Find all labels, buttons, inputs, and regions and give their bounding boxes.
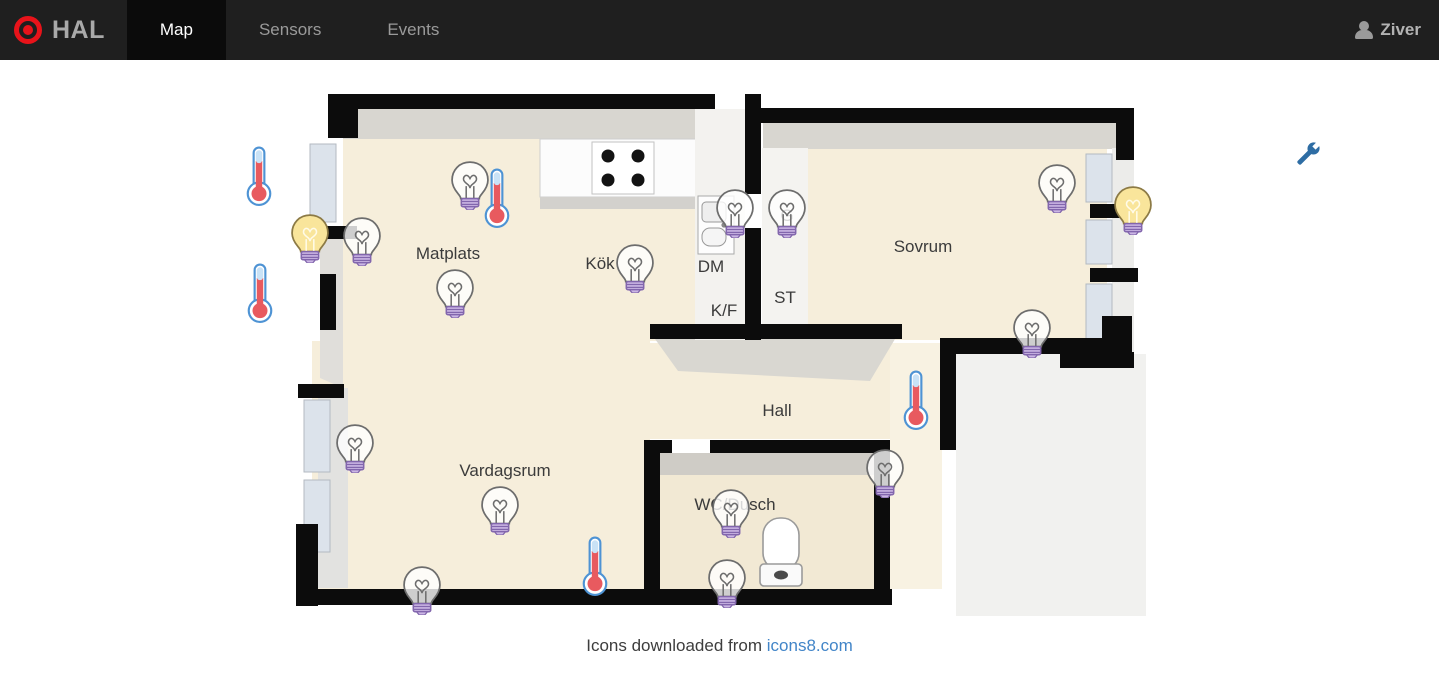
thermometer-icon[interactable] xyxy=(581,536,609,596)
user-menu[interactable]: Ziver xyxy=(1355,0,1439,60)
thermometer-icon[interactable] xyxy=(246,263,274,323)
brand-title: HAL xyxy=(52,16,105,45)
lightbulb-off-icon[interactable] xyxy=(765,188,809,238)
thermometer-icon[interactable] xyxy=(483,168,511,228)
lightbulb-on-icon[interactable] xyxy=(1111,185,1155,235)
floor-plan-drawing xyxy=(240,88,1160,628)
lightbulb-off-icon[interactable] xyxy=(713,188,757,238)
lightbulb-off-icon[interactable] xyxy=(400,565,444,615)
lightbulb-off-icon[interactable] xyxy=(340,216,384,266)
thermometer-icon[interactable] xyxy=(902,370,930,430)
lightbulb-off-icon[interactable] xyxy=(478,485,522,535)
tab-events[interactable]: Events xyxy=(354,0,472,60)
lightbulb-off-icon[interactable] xyxy=(709,488,753,538)
credits-text: Icons downloaded from xyxy=(586,636,762,655)
room-label-matplats: Matplats xyxy=(416,244,480,264)
lightbulb-off-icon[interactable] xyxy=(705,558,749,608)
target-icon xyxy=(14,16,42,44)
credits-caption: Icons downloaded from icons8.com xyxy=(0,636,1439,656)
brand[interactable]: HAL xyxy=(0,0,127,60)
tab-map[interactable]: Map xyxy=(127,0,226,60)
room-label-vardagsrum: Vardagsrum xyxy=(459,461,550,481)
room-label-k-k: Kök xyxy=(585,254,614,274)
user-icon xyxy=(1355,21,1373,39)
main-area: MatplatsKökDMK/FGSTSovrumHallVardagsrumW… xyxy=(0,60,1439,675)
lightbulb-off-icon[interactable] xyxy=(1010,308,1054,358)
lightbulb-off-icon[interactable] xyxy=(1035,163,1079,213)
thermometer-icon[interactable] xyxy=(245,146,273,206)
room-label-sovrum: Sovrum xyxy=(894,237,953,257)
lightbulb-off-icon[interactable] xyxy=(433,268,477,318)
navbar: HAL Map Sensors Events Ziver xyxy=(0,0,1439,60)
icons8-link[interactable]: icons8.com xyxy=(767,636,853,655)
lightbulb-off-icon[interactable] xyxy=(333,423,377,473)
user-name: Ziver xyxy=(1380,20,1421,40)
floor-plan: MatplatsKökDMK/FGSTSovrumHallVardagsrumW… xyxy=(240,88,1160,628)
lightbulb-off-icon[interactable] xyxy=(613,243,657,293)
wrench-icon xyxy=(1294,140,1322,168)
nav-tabs: Map Sensors Events xyxy=(127,0,472,60)
room-label-k-f: K/F xyxy=(711,301,737,321)
room-label-hall: Hall xyxy=(762,401,791,421)
lightbulb-off-icon[interactable] xyxy=(863,448,907,498)
tab-sensors[interactable]: Sensors xyxy=(226,0,354,60)
room-label-st: ST xyxy=(774,288,796,308)
lightbulb-on-icon[interactable] xyxy=(288,213,332,263)
room-label-dm: DM xyxy=(698,257,724,277)
settings-wrench-button[interactable] xyxy=(1294,140,1322,168)
